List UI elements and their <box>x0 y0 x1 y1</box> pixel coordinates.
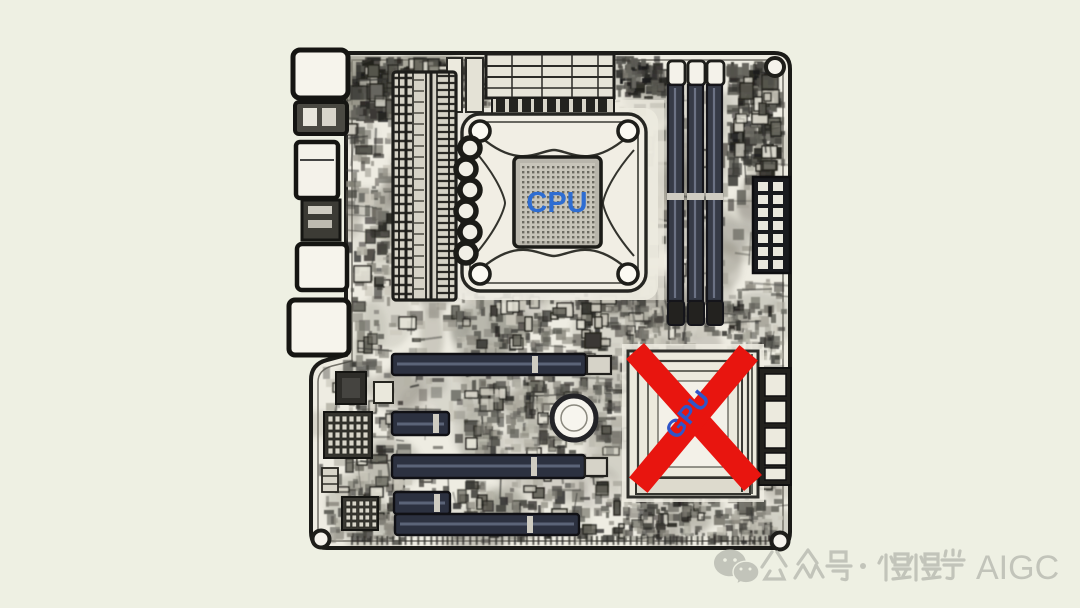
svg-text:AIGC: AIGC <box>976 549 1059 587</box>
svg-text:CPU: CPU <box>526 187 587 219</box>
